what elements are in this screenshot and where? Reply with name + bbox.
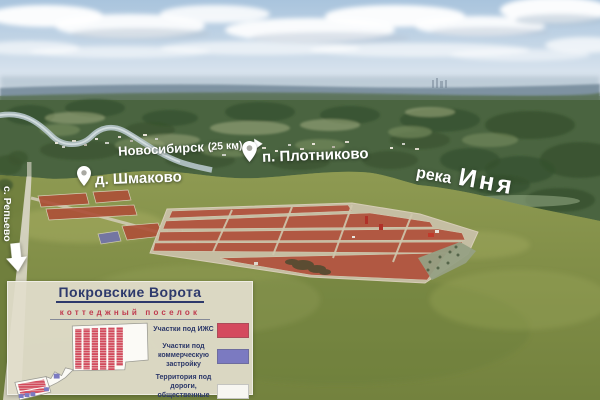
legend-panel: Покровские Ворота коттеджный поселок [7,281,253,395]
shmakovo-label: д. Шмаково [95,168,182,188]
legend-swatch-roads [217,384,249,399]
settlement-title: Покровские Ворота [56,285,205,303]
site-plan-map [11,321,153,400]
down-arrow-icon [5,242,29,273]
settlement-subtitle: коттеджный поселок [50,309,210,320]
legend-item-label: Участки под ИЖС [153,326,214,335]
legend-header: Покровские Ворота коттеджный поселок [11,285,249,320]
novosibirsk-distance-text: (25 км) [208,139,243,153]
promo-aerial-view: Новосибирск (25 км) п. Плотниково д. Шма… [0,0,600,400]
legend-item-label: Территория под дороги, общественные зоны [153,374,214,400]
legend-item: Участки под коммерческую застройку [153,343,249,369]
legend-item-label: Участки под коммерческую застройку [153,343,214,369]
repyevo-road-label: с. Репьево [1,186,13,242]
legend-item: Участки под ИЖС [153,323,249,338]
legend-items: Участки под ИЖС Участки под коммерческую… [153,321,249,400]
sky [0,0,600,98]
river-word: река [415,164,453,188]
legend-swatch-commercial [217,349,249,364]
legend-item: Территория под дороги, общественные зоны [153,374,249,400]
legend-swatch-izhs [217,323,249,338]
map-pin-icon [77,166,91,186]
map-pin-icon [242,141,257,162]
